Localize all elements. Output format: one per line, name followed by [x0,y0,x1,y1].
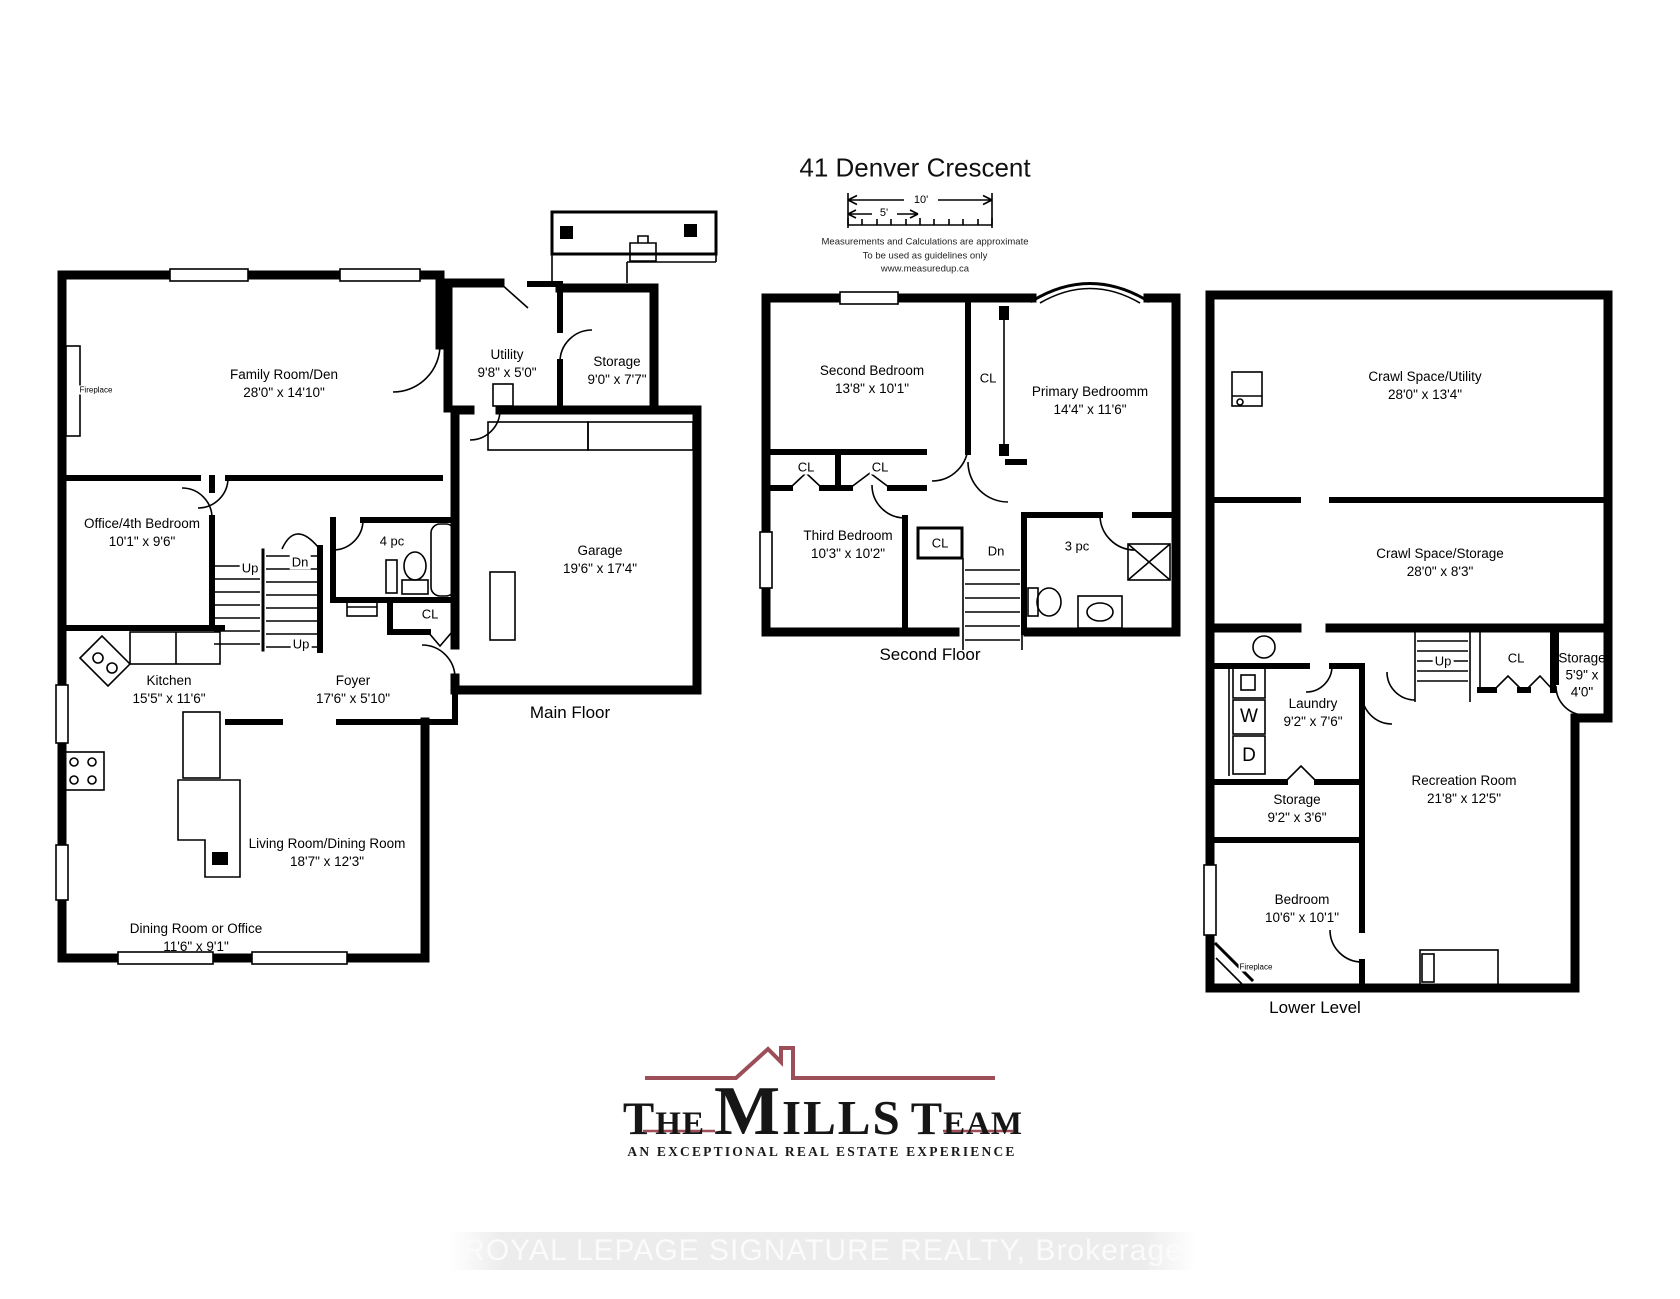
room-name: Storage [1267,791,1326,809]
room-dims: 28'0" x 8'3" [1376,563,1504,581]
room-name: Kitchen [132,672,205,690]
room-name: Crawl Space/Utility [1368,368,1481,386]
room-name: Bedroom [1265,891,1339,909]
room-name: Third Bedroom [803,527,892,545]
label-closet-main: CL [420,607,441,622]
label-foyer: Foyer 17'6" x 5'10" [316,672,390,708]
room-name: Storage [1557,650,1607,667]
room-dims: 28'0" x 14'10" [230,384,338,402]
room-dims: 15'5" x 11'6" [132,690,205,708]
room-dims: 10'6" x 10'1" [1265,909,1339,927]
room-name: Recreation Room [1411,772,1516,790]
room-dims: 21'8" x 12'5" [1411,790,1516,808]
label-second-bedroom: Second Bedroom 13'8" x 10'1" [820,362,924,398]
label-bath-4pc: 4 pc [378,534,407,549]
room-name: Garage [563,542,637,560]
room-name: Family Room/Den [230,366,338,384]
caption-second-floor: Second Floor [879,645,980,665]
label-stairs-up: Up [240,561,261,576]
label-fireplace-lower: Fireplace [1239,963,1274,972]
logo-word-mills: Mills [714,1072,902,1152]
disclaimer-line-1: Measurements and Calculations are approx… [822,237,1029,248]
room-name: Second Bedroom [820,362,924,380]
second-floor-walls [760,284,1176,651]
room-name: Primary Bedroomm [1032,383,1148,401]
label-closet-1: CL [796,460,817,475]
page-title: 41 Denver Crescent [799,153,1030,184]
scale-ten-label: 10' [912,194,930,206]
label-closet-lower: CL [1506,651,1527,666]
label-dining-room: Dining Room or Office 11'6" x 9'1" [130,920,263,956]
label-closet-3: CL [930,536,951,551]
label-stairs-up2: Up [291,637,312,652]
label-storage-right: Storage 5'9" x 4'0" [1557,650,1607,701]
room-dims: 9'2" x 3'6" [1267,809,1326,827]
room-dims: 9'8" x 5'0" [477,364,536,382]
label-utility: Utility 9'8" x 5'0" [477,346,536,382]
room-dims: 17'6" x 5'10" [316,690,390,708]
room-name: Storage [587,353,646,371]
room-name: Crawl Space/Storage [1376,545,1504,563]
disclaimer-line-3: www.measuredup.ca [881,264,969,275]
disclaimer-line-2: To be used as guidelines only [863,251,988,262]
label-crawl-storage: Crawl Space/Storage 28'0" x 8'3" [1376,545,1504,581]
label-fireplace-main: Fireplace [79,386,114,395]
label-washer: W [1238,706,1260,728]
label-storage-left: Storage 9'2" x 3'6" [1267,791,1326,827]
room-dims: 9'0" x 7'7" [587,371,646,389]
label-crawl-utility: Crawl Space/Utility 28'0" x 13'4" [1368,368,1481,404]
room-name: Dining Room or Office [130,920,263,938]
room-dims: 19'6" x 17'4" [563,560,637,578]
label-family-room: Family Room/Den 28'0" x 14'10" [230,366,338,402]
room-dims: 18'7" x 12'3" [249,853,406,871]
room-name: Office/4th Bedroom [84,515,200,533]
room-dims: 10'3" x 10'2" [803,545,892,563]
logo-word-team: Team [911,1092,1023,1146]
label-kitchen: Kitchen 15'5" x 11'6" [132,672,205,708]
caption-lower-level: Lower Level [1269,998,1361,1018]
brokerage-watermark: ROYAL LEPAGE SIGNATURE REALTY, Brokerage [451,1232,1196,1270]
room-dims: 14'4" x 11'6" [1032,401,1148,419]
label-bedroom-lower: Bedroom 10'6" x 10'1" [1265,891,1339,927]
label-third-bedroom: Third Bedroom 10'3" x 10'2" [803,527,892,563]
room-name: Foyer [316,672,390,690]
room-dims: 10'1" x 9'6" [84,533,200,551]
caption-main-floor: Main Floor [530,703,610,723]
floorplan-page: 41 Denver Crescent 10' 5' Measurements a… [0,0,1680,1299]
label-laundry: Laundry 9'2" x 7'6" [1283,695,1342,731]
scale-five-label: 5' [878,207,890,219]
logo-tagline: AN EXCEPTIONAL REAL ESTATE EXPERIENCE [627,1144,1016,1160]
label-storage-main: Storage 9'0" x 7'7" [587,353,646,389]
label-office-bedroom: Office/4th Bedroom 10'1" x 9'6" [84,515,200,551]
room-dims: 9'2" x 7'6" [1283,713,1342,731]
room-dims: 13'8" x 10'1" [820,380,924,398]
label-stairs-dn-second: Dn [986,544,1007,559]
label-closet-2: CL [870,460,891,475]
label-stairs-dn: Dn [290,555,311,570]
mills-team-logo: The Mills Team [623,1072,1023,1152]
logo-word-the: The [623,1092,705,1146]
label-dryer: D [1240,745,1258,767]
room-name: Laundry [1283,695,1342,713]
room-dims: 28'0" x 13'4" [1368,386,1481,404]
label-garage: Garage 19'6" x 17'4" [563,542,637,578]
label-recreation-room: Recreation Room 21'8" x 12'5" [1411,772,1516,808]
room-name: Living Room/Dining Room [249,835,406,853]
label-living-room: Living Room/Dining Room 18'7" x 12'3" [249,835,406,871]
room-dims: 5'9" x 4'0" [1557,667,1607,701]
room-name: Utility [477,346,536,364]
label-closet-corridor: CL [978,371,999,386]
label-primary-bedroom: Primary Bedroomm 14'4" x 11'6" [1032,383,1148,419]
room-dims: 11'6" x 9'1" [130,938,263,956]
label-bath-3pc: 3 pc [1063,539,1092,554]
label-stairs-up-lower: Up [1433,654,1454,669]
